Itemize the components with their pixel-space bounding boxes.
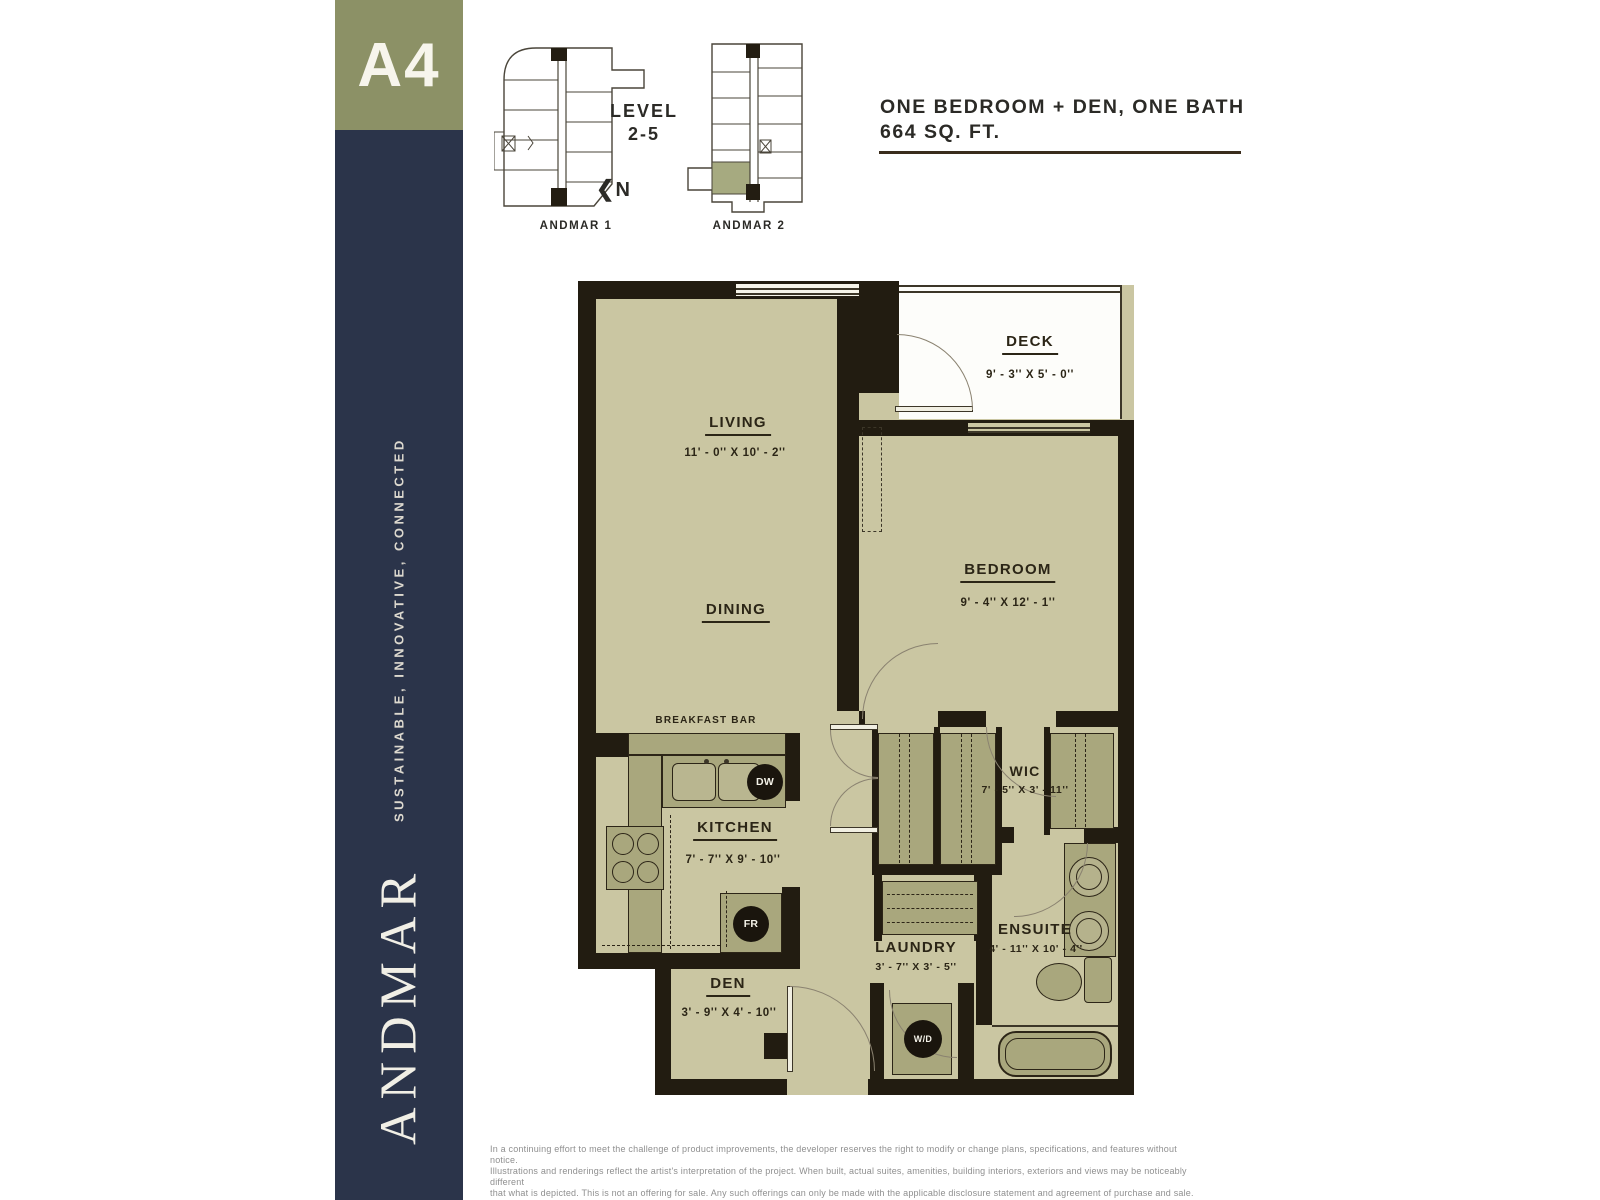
wall [1090, 420, 1118, 436]
faucet-icon [704, 759, 709, 764]
stove [606, 826, 664, 890]
level-line1: LEVEL [610, 100, 678, 123]
keyplan-andmar-1-label: ANDMAR 1 [540, 220, 613, 232]
floorplan: DW FR W/D LIVING 11' - 0'' X 10' - 2'' D… [578, 281, 1134, 1099]
dishwasher-badge: DW [747, 764, 783, 800]
exterior [578, 969, 655, 1099]
brand-name-vertical-text: ANDMAR [335, 845, 463, 1165]
living-label: LIVING [705, 414, 771, 436]
closet-shelf [878, 733, 934, 865]
kitchen-label: KITCHEN [693, 819, 777, 841]
french-door-swing [830, 778, 878, 826]
wic-closet-shelf [1050, 733, 1114, 829]
deck-dims: 9' - 3'' X 5' - 0'' [986, 369, 1074, 381]
french-door-swing [830, 730, 878, 778]
upper-cabinet-dashed [602, 945, 720, 946]
wall [578, 281, 736, 299]
wall [655, 969, 671, 1079]
wall [786, 733, 800, 801]
bedroom-label: BEDROOM [960, 561, 1055, 583]
wall [1084, 827, 1134, 843]
deck-label: DECK [1002, 333, 1058, 355]
wall [782, 887, 800, 953]
keyplan-andmar-2 [684, 34, 814, 218]
level-line2: 2-5 [610, 123, 678, 146]
living-dims: 11' - 0'' X 10' - 2'' [684, 447, 785, 459]
wall [859, 281, 899, 393]
north-arrow: ❮N [596, 176, 630, 202]
entry-door-swing [790, 986, 875, 1071]
floorplan-brochure-page: A4 SUSTAINABLE, INNOVATIVE, CONNECTED AN… [0, 0, 1600, 1200]
bedroom-window [968, 420, 1090, 436]
upper-cabinet-dashed [726, 891, 727, 947]
wall-line [992, 1025, 1118, 1027]
laundry-dims: 3' - 7'' X 3' - 5'' [875, 961, 956, 973]
bulkhead-dashed-outline [862, 427, 882, 532]
toilet-bowl [1036, 963, 1082, 1001]
exterior [578, 1095, 1134, 1099]
laundry-shelf [882, 881, 978, 935]
level-label: LEVEL 2-5 [610, 100, 678, 146]
disclaimer-line: that what is depicted. This is not an of… [490, 1188, 1200, 1200]
wall [837, 297, 859, 711]
wall [1002, 827, 1014, 843]
exterior [899, 281, 1134, 285]
wall [594, 733, 628, 757]
wall [958, 983, 974, 1083]
wall [1056, 711, 1118, 727]
ensuite-dims: 4' - 11'' X 10' - 4'' [989, 943, 1083, 955]
keyplan-andmar-2-label: ANDMAR 2 [713, 220, 786, 232]
north-letter: N [615, 179, 629, 201]
north-arrow-icon: ❮ [596, 176, 615, 201]
disclaimer: In a continuing effort to meet the chall… [490, 1144, 1200, 1200]
faucet-icon [724, 759, 729, 764]
washer-dryer-badge: W/D [904, 1020, 942, 1058]
dining-label: DINING [702, 601, 770, 623]
wall [868, 1079, 1134, 1095]
toilet-tank [1084, 957, 1112, 1003]
unit-code-badge: A4 [335, 0, 463, 130]
ensuite-label: ENSUITE [998, 921, 1072, 938]
wall [655, 1079, 787, 1095]
highlighted-unit-a4 [712, 162, 750, 194]
title-rule [879, 151, 1241, 154]
bathtub [998, 1031, 1112, 1077]
wall [578, 281, 596, 969]
upper-cabinet-dashed [670, 815, 671, 949]
wall [976, 843, 992, 1025]
bedroom-door-swing [862, 643, 938, 719]
wall [1118, 420, 1134, 1095]
page-title: ONE BEDROOM + DEN, ONE BATH [880, 96, 1245, 119]
bedroom-dims: 9' - 4'' X 12' - 1'' [961, 597, 1056, 609]
wall [874, 875, 882, 941]
wall [938, 711, 986, 727]
wall [764, 1033, 787, 1059]
breakfast-bar-counter [628, 733, 786, 755]
den-dims: 3' - 9'' X 4' - 10'' [682, 1007, 777, 1019]
sidebar: A4 SUSTAINABLE, INNOVATIVE, CONNECTED AN… [335, 0, 463, 1200]
wall [594, 953, 800, 969]
wic-dims: 7' - 5'' X 3' - 11'' [981, 784, 1068, 796]
wic-label: WIC [1009, 763, 1040, 779]
disclaimer-line: In a continuing effort to meet the chall… [490, 1144, 1200, 1166]
closet-shelf [940, 733, 996, 865]
keyplan-andmar-2-drawing [684, 34, 814, 218]
den-label: DEN [706, 975, 750, 997]
kitchen-dims: 7' - 7'' X 9' - 10'' [686, 854, 781, 866]
laundry-label: LAUNDRY [875, 939, 957, 956]
fridge-badge: FR [733, 906, 769, 942]
disclaimer-line: Illustrations and renderings reflect the… [490, 1166, 1200, 1188]
unit-code: A4 [357, 30, 440, 101]
french-door-leaf [830, 827, 878, 833]
stair-x-marker [760, 140, 771, 153]
breakfast-bar-label: BREAKFAST BAR [655, 715, 756, 726]
tagline-vertical-text: SUSTAINABLE, INNOVATIVE, CONNECTED [335, 430, 463, 830]
kitchen-sink-basin [672, 763, 716, 801]
unit-area: 664 SQ. FT. [880, 121, 1001, 144]
